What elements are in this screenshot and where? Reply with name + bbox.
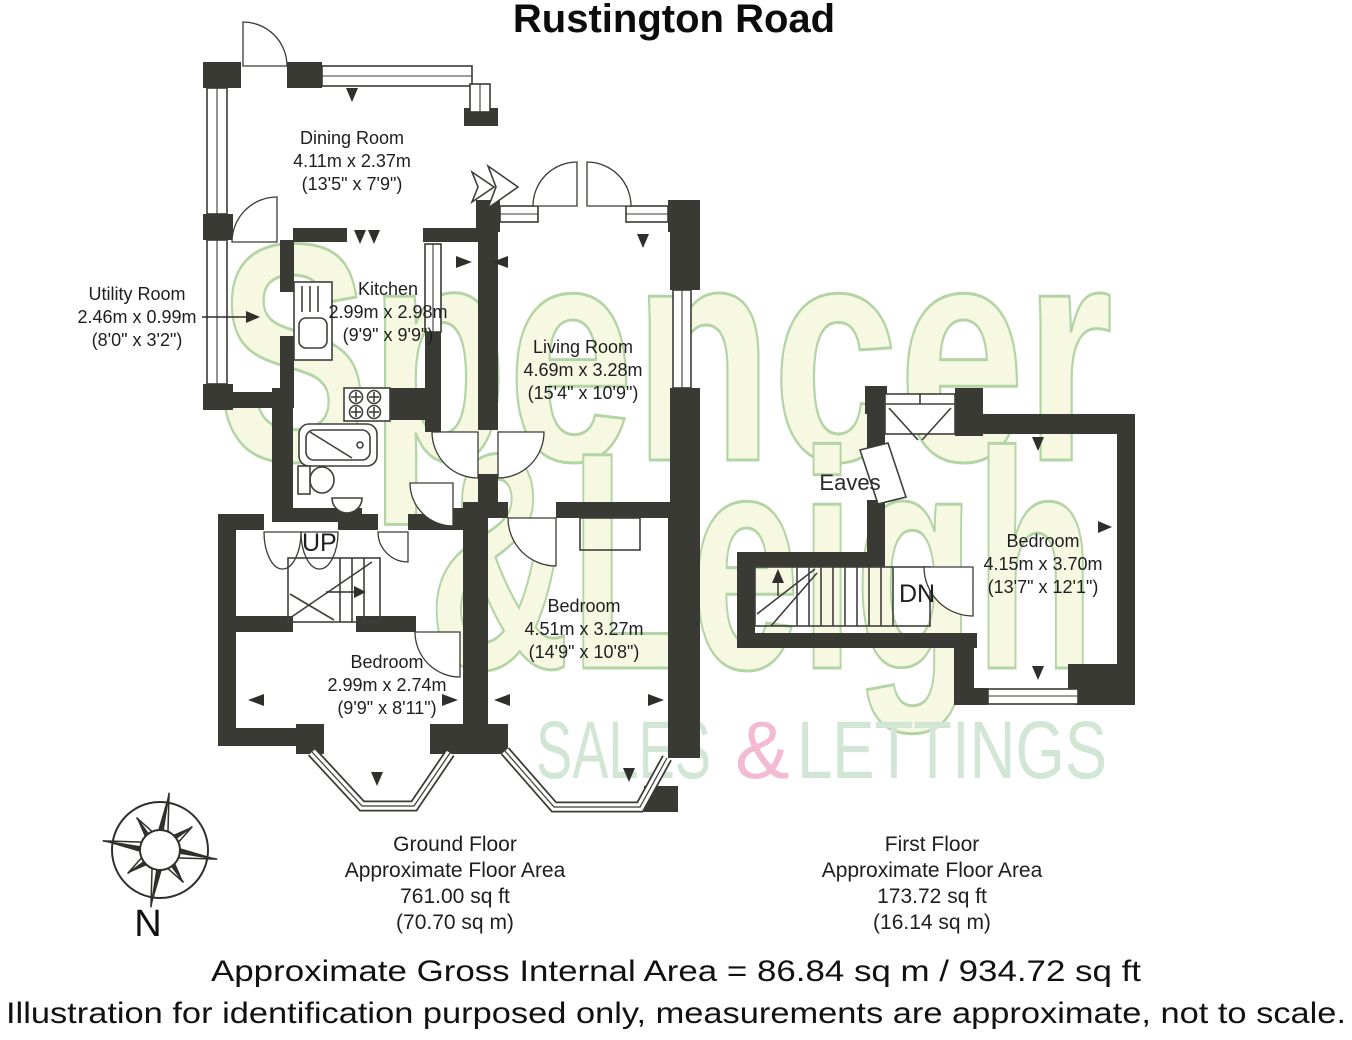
room-metric: 2.46m x 0.99m [77, 307, 196, 327]
room-imperial: (13'5" x 7'9") [302, 174, 403, 194]
floor-sqm: (16.14 sq m) [873, 911, 991, 934]
eaves-label: Eaves [819, 470, 880, 495]
door-hall [378, 532, 408, 562]
floor-sqft: 761.00 sq ft [400, 885, 510, 908]
french-door-left [533, 162, 577, 206]
watermark-tagline: SALES & LETTINGS [536, 705, 1107, 796]
room-metric: 4.51m x 3.27m [524, 619, 643, 639]
up-label: UP [302, 529, 337, 557]
room-imperial: (13'7" x 12'1") [988, 577, 1099, 597]
compass-rose-icon: N [94, 784, 227, 945]
floorplan-page: Spencer &Leigh SALES & LETTINGS [0, 0, 1352, 1040]
room-label-living: Living Room 4.69m x 3.28m (15'4" x 10'9"… [523, 337, 642, 403]
first-floor-summary: First Floor Approximate Floor Area 173.7… [822, 833, 1043, 934]
door-dining-exterior [243, 22, 287, 66]
room-imperial: (15'4" x 10'9") [528, 383, 639, 403]
kitchen-sink [299, 318, 327, 348]
floor-summaries: Ground Floor Approximate Floor Area 761.… [345, 833, 1043, 934]
room-name: Kitchen [358, 279, 418, 299]
room-imperial: (9'9" x 8'11") [337, 698, 436, 718]
toilet [298, 466, 310, 494]
gross-internal-area: Approximate Gross Internal Area = 86.84 … [211, 955, 1142, 988]
floor-name: First Floor [885, 833, 980, 856]
room-name: Utility Room [88, 284, 185, 304]
watermark-tagline-lettings: LETTINGS [797, 705, 1107, 796]
room-metric: 4.15m x 3.70m [983, 554, 1102, 574]
page-title: Rustington Road [513, 0, 835, 41]
room-name: Bedroom [547, 596, 620, 616]
floor-name: Ground Floor [393, 833, 517, 856]
room-label-dining: Dining Room 4.11m x 2.37m (13'5" x 7'9") [293, 128, 411, 194]
room-imperial: (14'9" x 10'8") [529, 642, 640, 662]
room-name: Living Room [533, 337, 633, 357]
french-door-right [587, 162, 631, 206]
room-metric: 2.99m x 2.98m [328, 302, 447, 322]
footer: Approximate Gross Internal Area = 86.84 … [6, 955, 1346, 1030]
floor-sqft: 173.72 sq ft [877, 885, 987, 908]
dn-label: DN [899, 580, 935, 608]
room-name: Bedroom [350, 652, 423, 672]
room-name: Dining Room [300, 128, 404, 148]
floor-area-line: Approximate Floor Area [345, 859, 566, 882]
room-imperial: (9'9" x 9'9") [343, 325, 434, 345]
watermark-tagline-amp: & [735, 705, 790, 796]
stairs-up [288, 558, 380, 622]
entrance-door-leaf-left [264, 532, 301, 569]
floor-area-line: Approximate Floor Area [822, 859, 1043, 882]
disclaimer: Illustration for identification purposed… [6, 997, 1346, 1030]
room-name: Bedroom [1006, 531, 1079, 551]
compass-north-label: N [134, 903, 161, 945]
ground-floor-summary: Ground Floor Approximate Floor Area 761.… [345, 833, 566, 934]
room-metric: 4.11m x 2.37m [293, 151, 411, 171]
floorplan-canvas: Spencer &Leigh SALES & LETTINGS [0, 0, 1352, 1040]
floor-sqm: (70.70 sq m) [396, 911, 514, 934]
room-imperial: (8'0" x 3'2") [92, 330, 183, 350]
room-metric: 2.99m x 2.74m [327, 675, 446, 695]
room-metric: 4.69m x 3.28m [523, 360, 642, 380]
